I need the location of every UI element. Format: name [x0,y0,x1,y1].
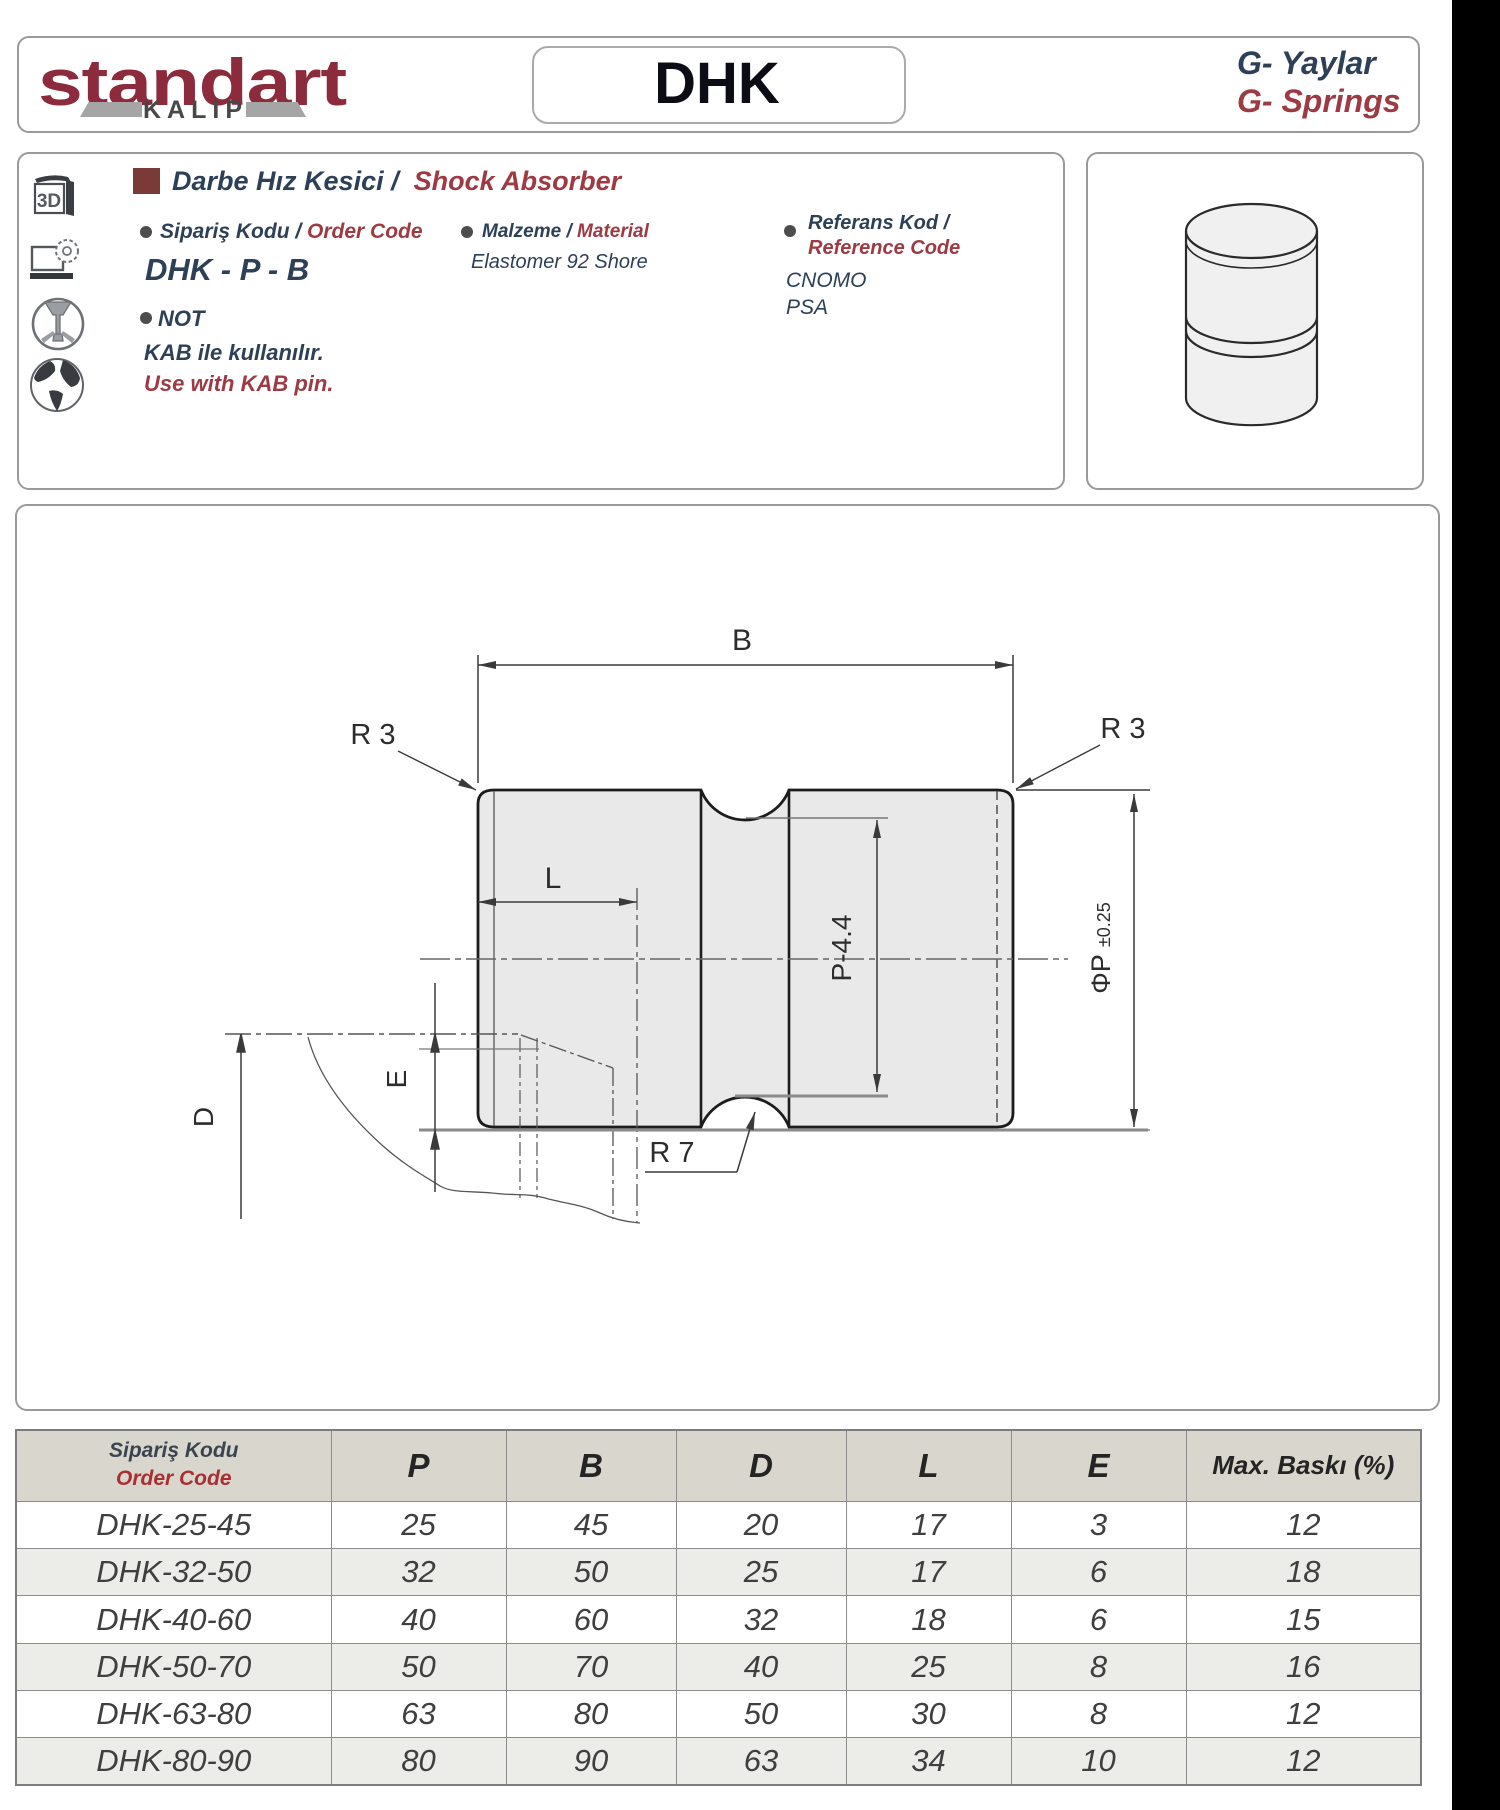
svg-text:P-4.4: P-4.4 [826,915,857,982]
svg-text:3D: 3D [37,191,61,212]
svg-text:R 3: R 3 [350,719,395,751]
svg-text:ΦP ±0.25: ΦP ±0.25 [1086,902,1116,994]
svg-text:R 3: R 3 [1100,713,1145,745]
svg-text:D: D [188,1107,219,1127]
svg-text:B: B [732,624,752,657]
svg-text:E: E [381,1070,412,1089]
svg-text:L: L [545,862,562,895]
svg-text:R 7: R 7 [649,1137,694,1169]
